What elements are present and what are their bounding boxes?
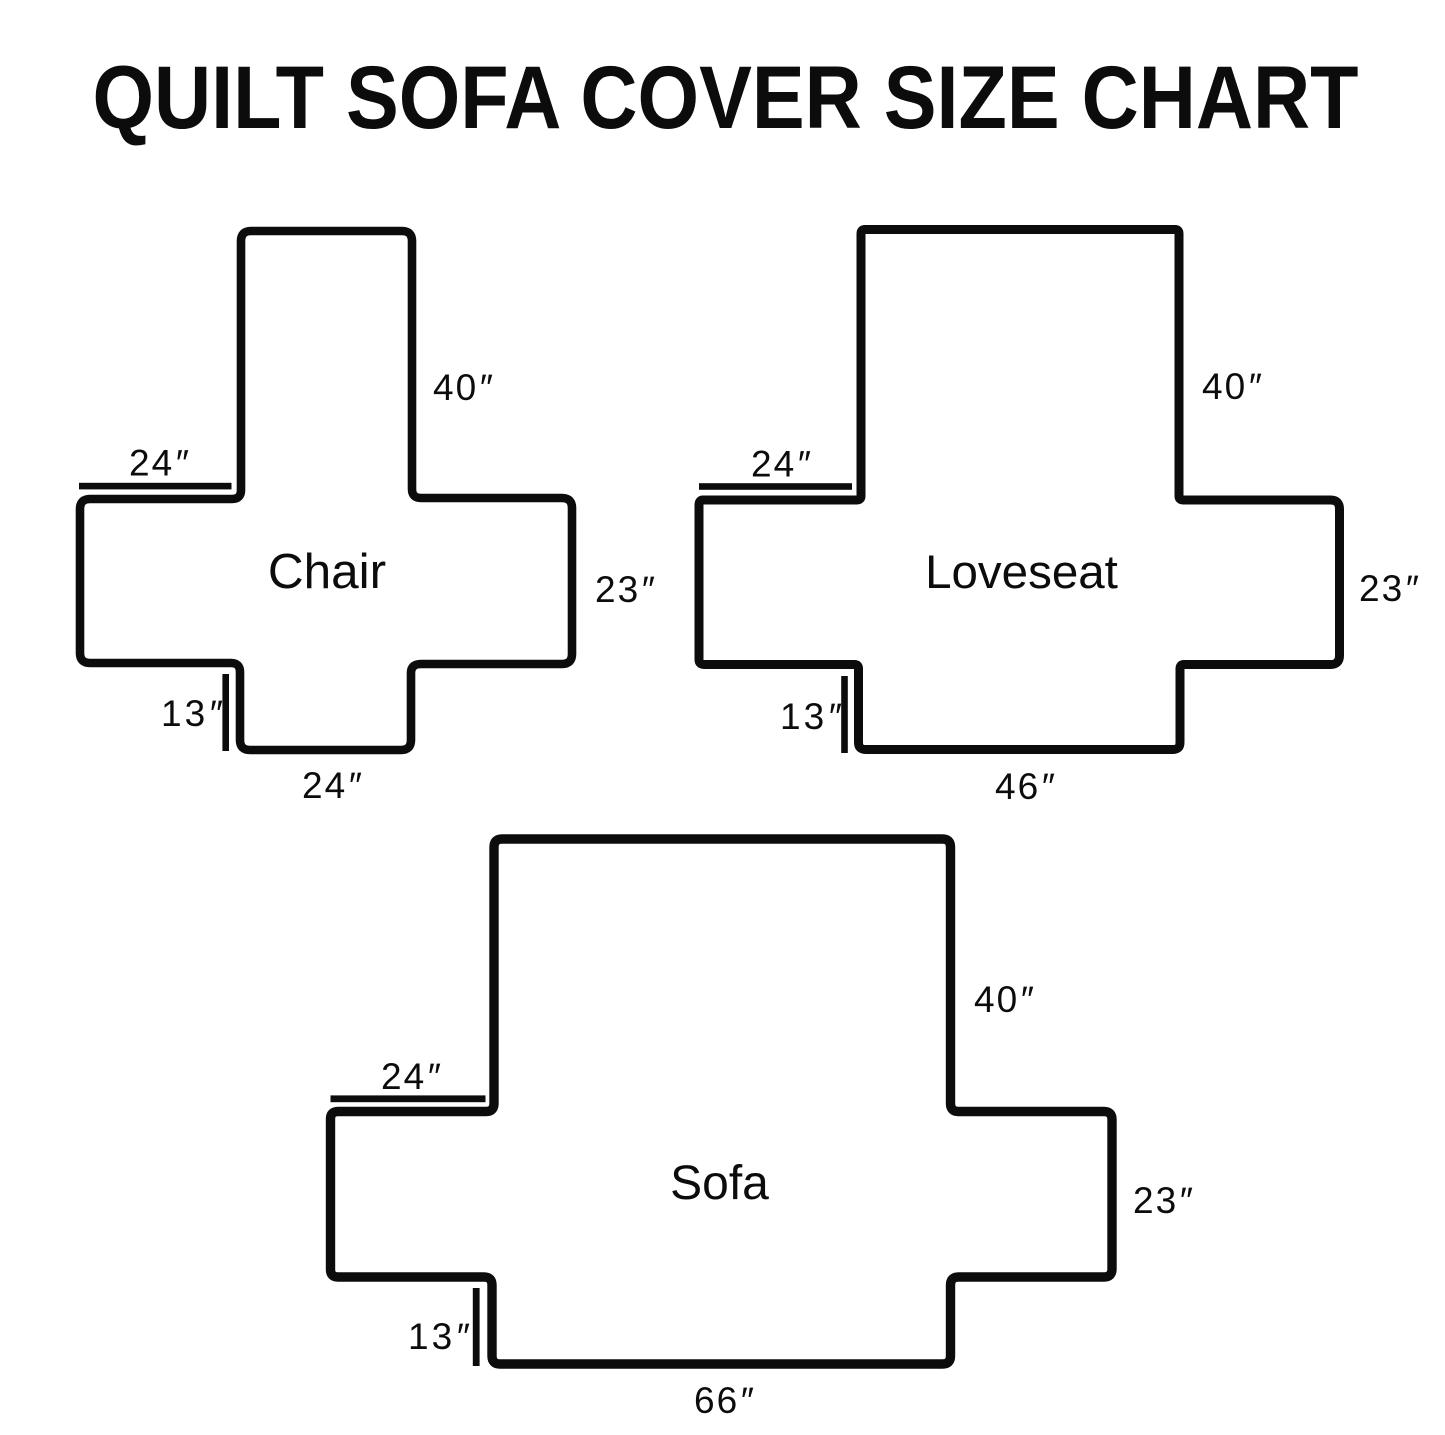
svg-text:23″: 23″ [595, 569, 655, 610]
svg-text:13″: 13″ [780, 696, 843, 737]
svg-text:13″: 13″ [408, 1316, 471, 1357]
svg-text:24″: 24″ [381, 1056, 441, 1097]
svg-text:46″: 46″ [995, 766, 1055, 807]
svg-text:24″: 24″ [302, 765, 362, 806]
svg-text:24″: 24″ [129, 443, 189, 484]
svg-text:40″: 40″ [433, 367, 493, 408]
svg-text:40″: 40″ [1202, 366, 1262, 407]
svg-text:QUILT SOFA COVER SIZE CHART: QUILT SOFA COVER SIZE CHART [93, 47, 1359, 147]
svg-text:13″: 13″ [161, 693, 224, 734]
svg-text:23″: 23″ [1359, 568, 1419, 609]
svg-text:66″: 66″ [694, 1380, 754, 1421]
svg-text:Loveseat: Loveseat [925, 546, 1118, 599]
svg-text:23″: 23″ [1133, 1180, 1193, 1221]
svg-text:Sofa: Sofa [670, 1157, 769, 1210]
svg-text:24″: 24″ [751, 444, 811, 485]
svg-text:40″: 40″ [974, 979, 1034, 1020]
svg-text:Chair: Chair [268, 544, 386, 599]
